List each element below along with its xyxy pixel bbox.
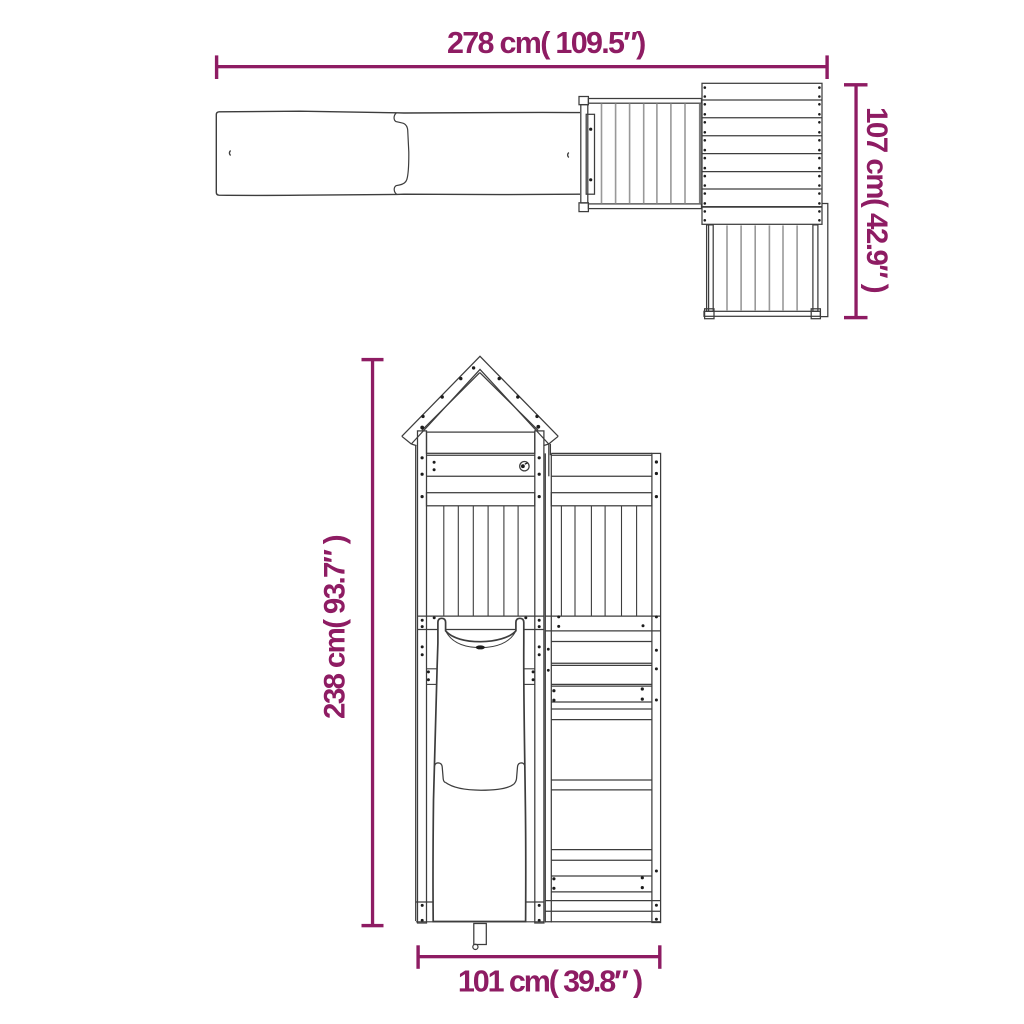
svg-text:278 cm( 109.5″): 278 cm( 109.5″) (447, 26, 645, 60)
svg-text:107 cm( 42.9″ ): 107 cm( 42.9″ ) (860, 107, 893, 293)
svg-text:101 cm( 39.8″ ): 101 cm( 39.8″ ) (458, 965, 642, 999)
svg-text:238 cm( 93.7″ ): 238 cm( 93.7″ ) (319, 535, 352, 719)
